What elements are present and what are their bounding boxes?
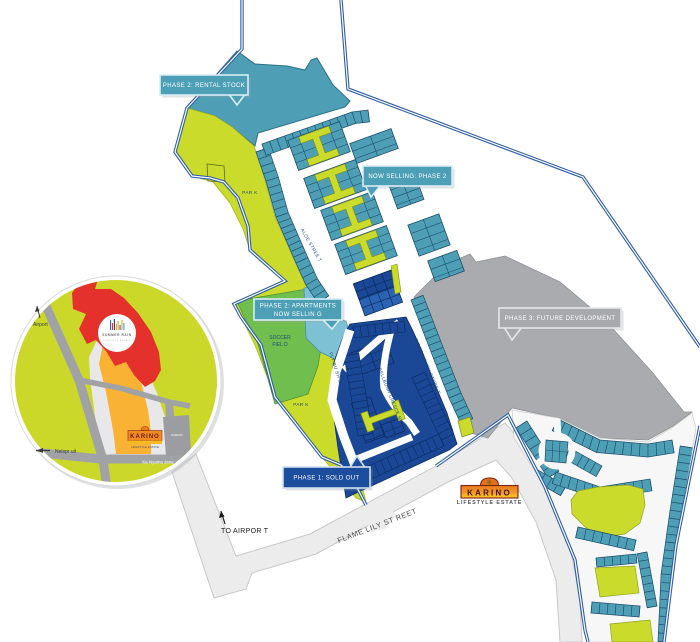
svg-text:TO AIRPOR T: TO AIRPOR T (221, 528, 269, 535)
svg-text:Ka Nyama zane: Ka Nyama zane (142, 460, 174, 465)
svg-text:LIFESTYLE ESTATE: LIFESTYLE ESTATE (457, 500, 522, 506)
svg-text:KARINO: KARINO (467, 488, 512, 497)
svg-text:SUMMER RAIN: SUMMER RAIN (102, 333, 132, 337)
svg-text:PAR K: PAR K (293, 402, 309, 407)
svg-text:LIFESTYLE ESTATE: LIFESTYLE ESTATE (103, 339, 131, 342)
svg-text:KARINO: KARINO (171, 433, 183, 437)
svg-text:LIFESTYLE ESTATE: LIFESTYLE ESTATE (131, 445, 159, 449)
svg-text:Nelspr uit: Nelspr uit (55, 449, 77, 455)
svg-text:KARINO: KARINO (130, 434, 160, 440)
svg-text:PHASE 3: FUTURE DEVELOPMENT: PHASE 3: FUTURE DEVELOPMENT (505, 316, 616, 322)
svg-text:PAR K: PAR K (242, 190, 258, 195)
svg-text:NOW SELLIN G: NOW SELLIN G (274, 312, 322, 318)
svg-text:FIEL D: FIEL D (272, 342, 288, 348)
svg-text:NOW SELLING: PHASE 2: NOW SELLING: PHASE 2 (368, 174, 447, 180)
svg-text:PHASE 2: APARTMENTS: PHASE 2: APARTMENTS (260, 303, 336, 309)
svg-text:SOCCER: SOCCER (269, 335, 291, 341)
svg-text:PHASE 1: SOLD OUT: PHASE 1: SOLD OUT (293, 476, 359, 482)
svg-text:PHASE 2: RENTAL STOCK: PHASE 2: RENTAL STOCK (163, 83, 245, 89)
svg-text:Airport: Airport (33, 322, 48, 328)
